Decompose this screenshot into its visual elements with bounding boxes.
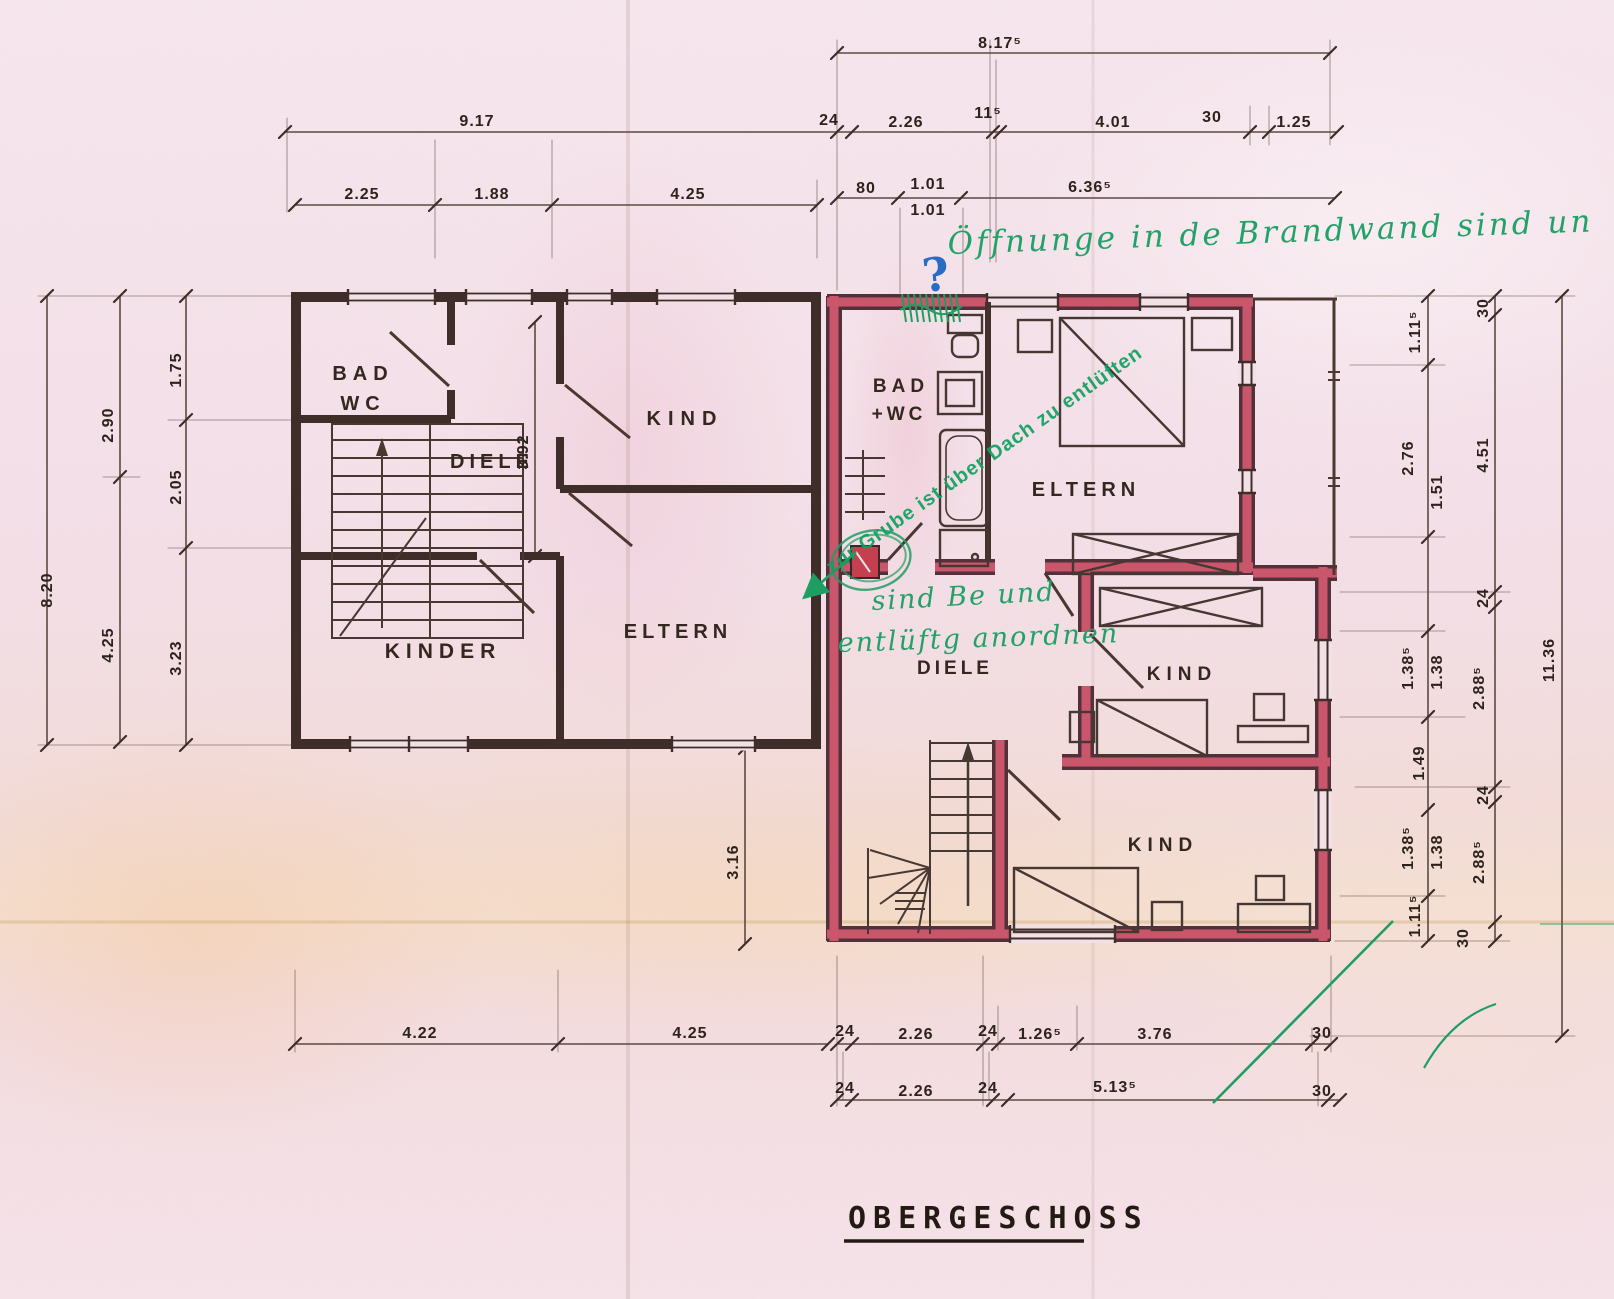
dim-label: 30: [1455, 928, 1472, 948]
dim-label: 2.90: [100, 407, 117, 442]
room-label: ELTERN: [1032, 479, 1141, 501]
dim-label: 1.25: [1276, 114, 1311, 131]
dim-label: 2.76: [1400, 440, 1417, 475]
room-label: ELTERN: [624, 621, 733, 643]
dim-label: 3.16: [725, 844, 742, 879]
dim-label: 2.26: [888, 114, 923, 131]
dim-label: 8.17⁵: [978, 35, 1022, 52]
drawing-title: OBERGESCHOSS: [844, 1201, 1149, 1241]
room-label: KIND: [1128, 835, 1198, 856]
room-label: BAD: [332, 363, 393, 385]
dim-label: 24: [1475, 588, 1492, 608]
paper-texture: [0, 0, 1614, 1299]
dim-label: 1.49: [1411, 745, 1428, 780]
dim-label: 4.25: [100, 627, 117, 662]
dim-label: 9.17: [459, 113, 494, 130]
dim-label: 3.76: [1137, 1026, 1172, 1043]
dim-label: 1.01: [910, 202, 945, 219]
dim-label: 11⁵: [974, 105, 1001, 122]
dim-label: 3.23: [168, 640, 185, 675]
dim-label: 1.88: [474, 186, 509, 203]
dim-label: 4.01: [1095, 114, 1130, 131]
dim-label: 1.38⁵: [1400, 826, 1417, 870]
dim-label: 1.26⁵: [1018, 1026, 1062, 1043]
dim-label: 1.75: [168, 352, 185, 387]
blue-question-mark: ?: [920, 246, 952, 303]
dim-label: 2.26: [898, 1026, 933, 1043]
dim-label: 80: [856, 180, 876, 197]
dim-label: 1.38⁵: [1400, 646, 1417, 690]
dim-label: 1.38: [1429, 834, 1446, 869]
room-label: DIELE: [917, 658, 993, 679]
room-label: BAD: [873, 376, 929, 397]
dim-label: 30: [1202, 109, 1222, 126]
room-label: KIND: [647, 408, 724, 430]
room-label: +WC: [872, 404, 927, 425]
dim-label: 2.05: [168, 469, 185, 504]
room-label: DIELE: [450, 451, 534, 473]
dim-label: 30: [1475, 298, 1492, 318]
dim-label: 2.25: [344, 186, 379, 203]
dim-label: 8.20: [39, 572, 56, 607]
dim-label: 30: [1312, 1083, 1332, 1100]
room-label: KIND: [1147, 664, 1217, 685]
title-text: OBERGESCHOSS: [848, 1201, 1149, 1236]
dim-label: 24: [819, 112, 839, 129]
dim-label: 1.51: [1429, 474, 1446, 509]
dim-label: 1.38: [1429, 654, 1446, 689]
dim-label: 1.01: [910, 176, 945, 193]
room-label: KINDER: [385, 640, 502, 663]
dim-label: 24: [978, 1080, 998, 1097]
dim-label: 5.13⁵: [1093, 1079, 1137, 1096]
dim-label: 1.11⁵: [1407, 895, 1424, 938]
dim-label: 2.26: [898, 1083, 933, 1100]
dim-label: 11.36: [1541, 638, 1558, 682]
dim-label: 4.25: [672, 1025, 707, 1042]
dim-label: 4.25: [670, 186, 705, 203]
dim-label: 2.88⁵: [1471, 840, 1488, 884]
dim-label: 24: [835, 1023, 855, 1040]
dim-label: 6.36⁵: [1068, 179, 1112, 196]
dim-label: 2.88⁵: [1471, 666, 1488, 710]
dim-label: 24: [978, 1023, 998, 1040]
dim-label: 1.11⁵: [1407, 311, 1424, 354]
scanned-floor-plan: Öffnunge in de Brandwand sind un zur Gru…: [0, 0, 1614, 1299]
room-label: WC: [340, 393, 385, 415]
dim-label: 4.22: [402, 1025, 437, 1042]
floor-plan-drawing: Öffnunge in de Brandwand sind un zur Gru…: [0, 0, 1614, 1299]
dim-label: 24: [1475, 785, 1492, 805]
dim-label: 30: [1312, 1025, 1332, 1042]
dim-label: 4.51: [1475, 437, 1492, 472]
dim-label: 24: [835, 1080, 855, 1097]
